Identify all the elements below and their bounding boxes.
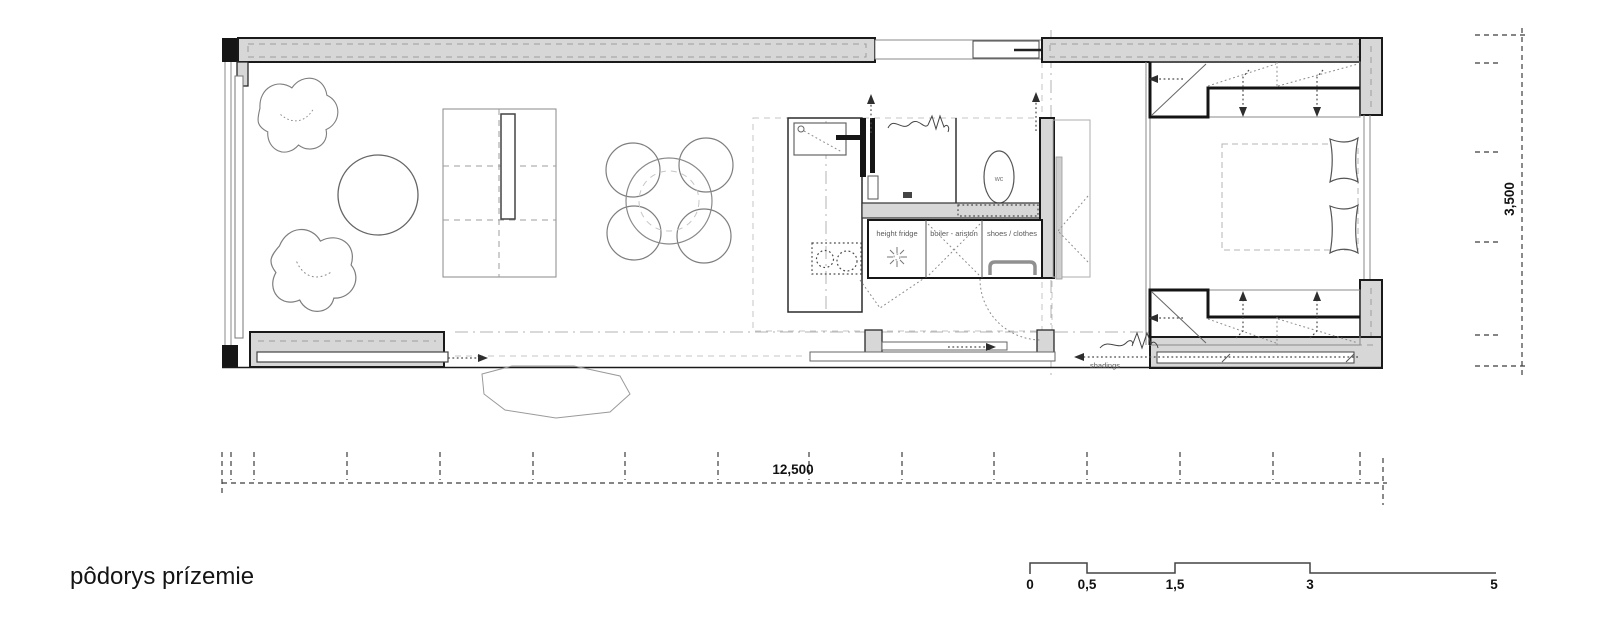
arrow-up-head-2 — [1313, 291, 1321, 301]
pocket-door-leaf — [868, 176, 878, 199]
bottom-left-sliding-panel — [257, 352, 448, 362]
round-table — [338, 155, 418, 235]
corridor-door-swing — [1058, 196, 1088, 262]
dimension-bottom: 12,500 — [222, 452, 1387, 505]
beanbag-seam — [280, 106, 315, 124]
floor-plan-canvas: wc height fridge boiler - ariston shoes … — [0, 0, 1600, 622]
wardrobe-arrow-down-1 — [1243, 70, 1249, 110]
arrow-down-head-2 — [1313, 107, 1321, 117]
scale-bar-shape — [1030, 563, 1496, 574]
dim-width-label: 12,500 — [772, 462, 813, 477]
arrow-up-head-1 — [1239, 291, 1247, 301]
scale-tick-05: 0,5 — [1078, 577, 1097, 592]
faucet-icon — [836, 135, 860, 140]
flower-petal-3 — [607, 206, 661, 260]
cabinet-label-fridge: height fridge — [876, 229, 917, 238]
scale-tick-5: 5 — [1490, 577, 1498, 592]
rect-table — [443, 109, 556, 277]
wardrobe-top — [1150, 62, 1360, 117]
bedroom — [1100, 62, 1360, 348]
beanbag-outline — [250, 71, 345, 160]
arrow-down-head-1 — [1239, 107, 1247, 117]
flower-petal-1 — [606, 143, 660, 197]
terrace-arrow-right-1-head — [478, 354, 488, 362]
bathroom-core: wc height fridge boiler - ariston shoes … — [860, 116, 1090, 340]
kitchen — [788, 118, 862, 312]
dimension-right: 3,500 — [1475, 28, 1528, 375]
beanbag-chair-2 — [262, 224, 363, 318]
pillow-2 — [1330, 205, 1358, 253]
wardrobe-arrow-down-2 — [1317, 70, 1323, 110]
beanbag-chair-1 — [250, 71, 345, 160]
wc-label: wc — [994, 176, 1004, 183]
rock-outline — [482, 366, 630, 418]
scale-tick-15: 1,5 — [1166, 577, 1185, 592]
flower-petal-2 — [679, 138, 733, 192]
scale-bar: 0 0,5 1,5 3 5 — [1026, 563, 1498, 592]
cabinet-label-shoes: shoes / clothes — [987, 229, 1037, 238]
floor-plan-page: wc height fridge boiler - ariston shoes … — [0, 0, 1600, 622]
left-glass-panel — [235, 76, 243, 338]
pocket-door-rail-2 — [870, 118, 875, 173]
corridor-door-panel — [1056, 157, 1062, 279]
sliding-panel-2 — [810, 352, 1055, 361]
shadings-arrow-head — [1074, 353, 1084, 361]
flower-inner-dashed — [639, 171, 699, 231]
wall-post-top-left — [222, 38, 238, 62]
scale-tick-0: 0 — [1026, 577, 1034, 592]
exit-arrow-up-2-head — [1032, 92, 1040, 102]
dim-height-label: 3,500 — [1502, 182, 1517, 216]
beanbag-seam — [294, 262, 332, 281]
top-wall-right — [1042, 38, 1382, 62]
shadings-label: shadings — [1090, 361, 1120, 370]
pillow-1 — [1330, 138, 1358, 182]
wardrobe-top-thick-edge — [1150, 62, 1360, 117]
floor-drain-icon — [903, 192, 912, 198]
pocket-door-rail-1 — [860, 118, 866, 177]
flower-petal-4 — [677, 209, 731, 263]
top-wall-left — [238, 38, 875, 62]
flower-table — [606, 138, 733, 263]
wardrobe-top-diagonal — [1152, 64, 1206, 115]
rect-table-slot — [501, 114, 515, 219]
scale-tick-3: 3 — [1306, 577, 1314, 592]
wardrobe-top-dotted-diagonals — [1208, 64, 1358, 86]
plan-title: pôdorys prízemie — [70, 563, 254, 590]
bifold-door-swing — [860, 279, 923, 308]
exit-arrow-up-1-head — [867, 94, 875, 104]
beanbag-outline — [262, 224, 363, 318]
wall-post-bottom-left — [222, 345, 238, 368]
